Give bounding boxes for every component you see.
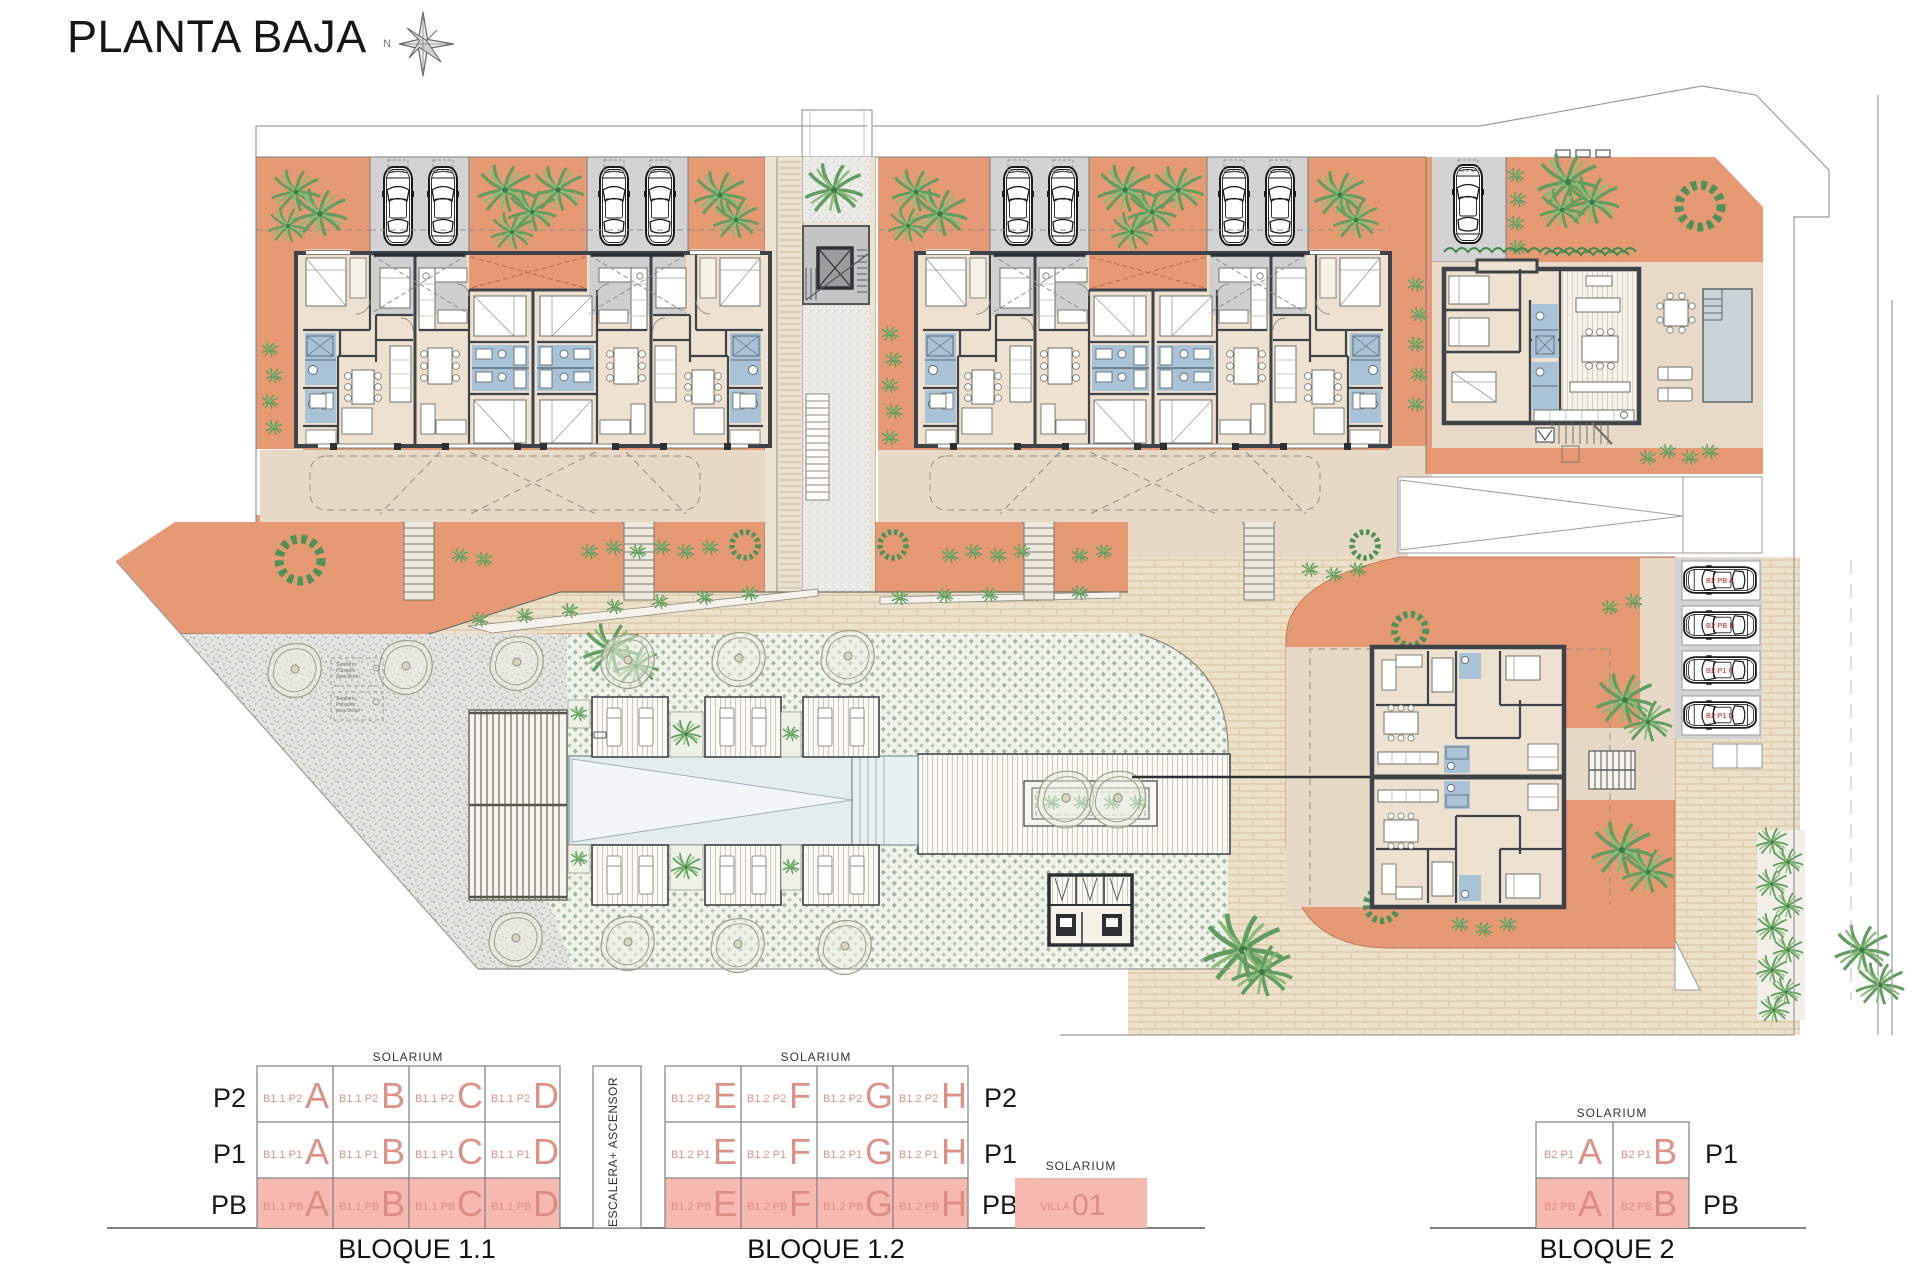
svg-text:B1.2 P1: B1.2 P1 (747, 1149, 786, 1161)
svg-text:B1.2 P2: B1.2 P2 (823, 1093, 862, 1105)
svg-text:F: F (789, 1075, 811, 1116)
svg-text:G: G (865, 1075, 893, 1116)
svg-text:B1.2 P2: B1.2 P2 (671, 1093, 710, 1105)
svg-text:A: A (305, 1183, 329, 1224)
svg-text:A: A (305, 1131, 329, 1172)
svg-text:B1.1 PB: B1.1 PB (339, 1201, 379, 1213)
svg-text:P1: P1 (1705, 1139, 1738, 1169)
svg-text:para beber: para beber (336, 708, 361, 714)
svg-text:B1.1 P1: B1.1 P1 (491, 1149, 530, 1161)
svg-text:B1.1 PB: B1.1 PB (491, 1201, 531, 1213)
svg-text:B1.1 P1: B1.1 P1 (339, 1149, 378, 1161)
svg-text:B1.2 P2: B1.2 P2 (899, 1093, 938, 1105)
svg-text:BLOQUE 1.1: BLOQUE 1.1 (338, 1234, 496, 1264)
svg-text:B2 PB B: B2 PB B (1706, 621, 1734, 630)
svg-text:P2: P2 (213, 1083, 246, 1113)
svg-text:B1.1 P1: B1.1 P1 (415, 1149, 454, 1161)
svg-text:B: B (381, 1075, 405, 1116)
svg-text:H: H (941, 1075, 967, 1116)
svg-text:BLOQUE 1.2: BLOQUE 1.2 (747, 1234, 905, 1264)
svg-text:E: E (713, 1075, 737, 1116)
svg-text:B1.1 PB: B1.1 PB (263, 1201, 303, 1213)
svg-text:B1.1 P1: B1.1 P1 (263, 1149, 302, 1161)
svg-text:P1: P1 (984, 1139, 1017, 1169)
svg-text:B2 PB: B2 PB (1621, 1201, 1652, 1213)
svg-text:B2 P1 C: B2 P1 C (1706, 666, 1735, 675)
svg-text:SOLARIUM: SOLARIUM (781, 1050, 852, 1064)
svg-text:E: E (713, 1183, 737, 1224)
svg-text:01: 01 (1072, 1189, 1105, 1222)
svg-text:B1.2 P1: B1.2 P1 (899, 1149, 938, 1161)
svg-text:D: D (533, 1131, 559, 1172)
svg-text:B2 PB: B2 PB (1544, 1201, 1575, 1213)
svg-text:A: A (1578, 1183, 1602, 1224)
svg-text:N: N (383, 38, 391, 50)
svg-text:H: H (941, 1131, 967, 1172)
svg-text:H: H (941, 1183, 967, 1224)
svg-text:B1.1 P2: B1.1 P2 (263, 1093, 302, 1105)
svg-text:C: C (457, 1131, 483, 1172)
svg-text:F: F (789, 1131, 811, 1172)
svg-text:B: B (381, 1183, 405, 1224)
svg-text:C: C (457, 1075, 483, 1116)
svg-text:P1: P1 (213, 1139, 246, 1169)
svg-text:SOLARIUM: SOLARIUM (1577, 1106, 1648, 1120)
svg-text:B: B (1653, 1183, 1677, 1224)
svg-text:para beber: para beber (336, 674, 361, 680)
svg-text:C: C (457, 1183, 483, 1224)
svg-text:PB: PB (211, 1190, 247, 1220)
svg-text:B1.2 P1: B1.2 P1 (671, 1149, 710, 1161)
svg-text:F: F (789, 1183, 811, 1224)
svg-text:B1.2 PB: B1.2 PB (671, 1201, 711, 1213)
svg-text:D: D (533, 1183, 559, 1224)
svg-text:B1.2 PB: B1.2 PB (823, 1201, 863, 1213)
svg-text:P2: P2 (984, 1083, 1017, 1113)
svg-text:A: A (305, 1075, 329, 1116)
svg-text:B1.1 PB: B1.1 PB (415, 1201, 455, 1213)
svg-text:B1.2 PB: B1.2 PB (747, 1201, 787, 1213)
svg-text:B1.2 P2: B1.2 P2 (747, 1093, 786, 1105)
svg-text:SOLARIUM: SOLARIUM (373, 1050, 444, 1064)
svg-text:B1.2 PB: B1.2 PB (899, 1201, 939, 1213)
svg-text:SOLARIUM: SOLARIUM (1046, 1159, 1117, 1173)
svg-text:B1.2 P1: B1.2 P1 (823, 1149, 862, 1161)
svg-text:B: B (1653, 1131, 1677, 1172)
svg-text:B2 P1: B2 P1 (1544, 1149, 1574, 1161)
svg-text:B1.1 P2: B1.1 P2 (491, 1093, 530, 1105)
svg-text:G: G (865, 1183, 893, 1224)
svg-text:D: D (533, 1075, 559, 1116)
svg-text:B2 P1 D: B2 P1 D (1706, 711, 1735, 720)
svg-text:A: A (1578, 1131, 1602, 1172)
svg-text:B: B (381, 1131, 405, 1172)
svg-text:ESCALERA+ ASCENSOR: ESCALERA+ ASCENSOR (606, 1077, 620, 1227)
svg-text:B1.1 P2: B1.1 P2 (415, 1093, 454, 1105)
svg-text:B2 PB A: B2 PB A (1706, 576, 1734, 585)
svg-text:VILLA: VILLA (1040, 1201, 1071, 1213)
svg-text:PB: PB (1703, 1190, 1739, 1220)
svg-text:PB: PB (982, 1190, 1018, 1220)
svg-text:E: E (713, 1131, 737, 1172)
svg-text:BLOQUE 2: BLOQUE 2 (1539, 1234, 1674, 1264)
svg-text:G: G (865, 1131, 893, 1172)
svg-text:B1.1 P2: B1.1 P2 (339, 1093, 378, 1105)
svg-text:PLANTA BAJA: PLANTA BAJA (67, 11, 367, 62)
svg-text:B2 P1: B2 P1 (1621, 1149, 1651, 1161)
